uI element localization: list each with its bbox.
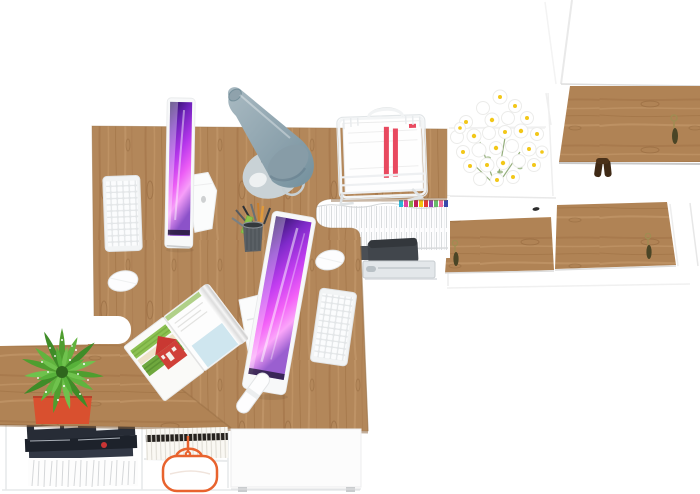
workspace-render — [0, 0, 700, 494]
paper-red-stripe — [384, 127, 389, 178]
white-drawer-front — [231, 429, 361, 492]
white-keyboard-1 — [103, 175, 143, 251]
mid-wood-door-right — [555, 202, 676, 269]
paper-red-stripe — [393, 129, 398, 177]
mid-wood-doors — [445, 202, 698, 288]
metal-drawer — [363, 261, 437, 279]
upper-wood-cabinet-door — [559, 86, 700, 162]
dark-ornament — [594, 158, 612, 177]
desk-left-notch — [0, 316, 131, 344]
tall-white-cabinet — [545, 0, 700, 177]
scene-canvas — [0, 0, 700, 494]
daisy-bouquet — [451, 90, 552, 187]
fanned-pages — [28, 458, 138, 487]
wire-paper-tray — [336, 106, 427, 204]
mid-wood-door-left — [445, 217, 554, 273]
handle-notch — [532, 207, 539, 212]
